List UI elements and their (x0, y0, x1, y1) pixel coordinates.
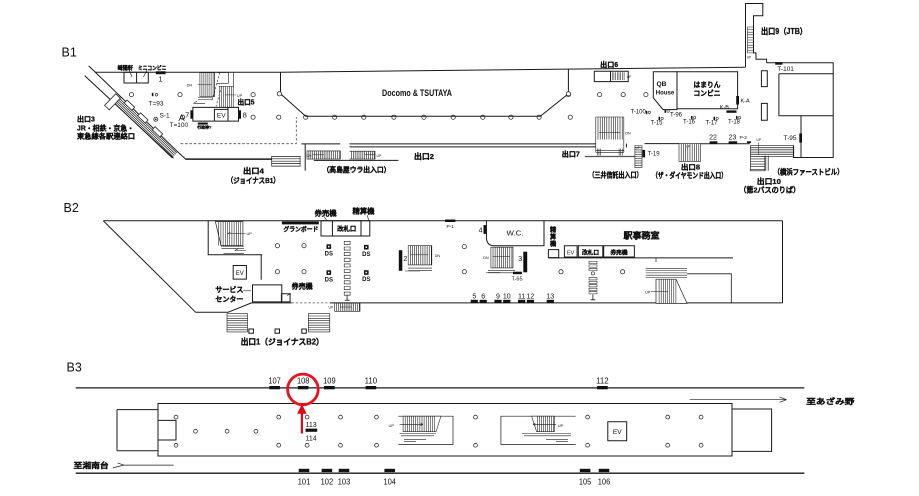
svg-text:ミニコンビニ: ミニコンビニ (138, 64, 167, 72)
svg-text:13: 13 (546, 293, 554, 300)
svg-text:S-1: S-1 (160, 112, 171, 119)
svg-text:P-1: P-1 (446, 224, 454, 230)
svg-text:QB: QB (657, 81, 668, 88)
svg-text:T-18: T-18 (728, 120, 741, 126)
svg-text:はまりん: はまりん (694, 80, 721, 89)
svg-text:T-100: T-100 (631, 109, 647, 115)
svg-text:P-2: P-2 (739, 135, 747, 141)
svg-text:B3: B3 (67, 361, 82, 375)
svg-text:DN: DN (435, 254, 441, 258)
svg-text:T=93: T=93 (149, 100, 164, 107)
svg-text:2: 2 (403, 256, 407, 263)
svg-text:W.C.: W.C. (507, 231, 524, 238)
svg-text:T-19: T-19 (648, 151, 661, 157)
svg-text:UP: UP (237, 94, 243, 98)
svg-text:機: 機 (550, 240, 557, 248)
svg-text:UP: UP (645, 290, 651, 294)
svg-text:T-65: T-65 (512, 276, 523, 282)
svg-text:K-A: K-A (741, 99, 751, 105)
svg-text:102: 102 (321, 478, 334, 487)
svg-text:DN: DN (307, 154, 312, 158)
svg-text:（三井信託出入口）: （三井信託出入口） (589, 170, 643, 180)
svg-text:114: 114 (306, 435, 317, 442)
svg-text:出口3: 出口3 (77, 115, 95, 124)
svg-text:崎陽軒: 崎陽軒 (118, 64, 134, 72)
svg-text:UP: UP (377, 154, 382, 158)
svg-text:JR・相鉄・京急・: JR・相鉄・京急・ (77, 123, 134, 132)
svg-text:（髙島屋ウラ出入口）: （髙島屋ウラ出入口） (323, 165, 391, 174)
svg-text:5: 5 (472, 293, 476, 300)
svg-text:EV: EV (613, 429, 622, 436)
svg-text:K-B: K-B (720, 105, 730, 111)
svg-text:DN: DN (483, 256, 489, 260)
svg-text:Docomo & TSUTAYA: Docomo & TSUTAYA (382, 88, 452, 98)
svg-text:11: 11 (518, 293, 525, 300)
svg-text:104: 104 (383, 478, 396, 487)
svg-text:UP: UP (558, 423, 564, 428)
svg-text:6: 6 (481, 293, 485, 300)
svg-text:UP: UP (247, 232, 253, 236)
svg-text:出口5: 出口5 (238, 98, 255, 107)
svg-text:行政神?: 行政神? (196, 125, 211, 130)
svg-text:112: 112 (596, 376, 609, 385)
svg-text:DN: DN (625, 131, 631, 135)
svg-text:12: 12 (527, 293, 535, 300)
svg-text:8: 8 (243, 110, 247, 119)
svg-text:（ジョイナスB1）: （ジョイナスB1） (227, 175, 280, 185)
svg-text:出口1（ジョイナスB2）: 出口1（ジョイナスB2） (241, 336, 324, 346)
svg-text:UP: UP (756, 138, 761, 142)
svg-text:103: 103 (338, 478, 351, 487)
svg-text:DS: DS (362, 277, 370, 283)
svg-text:106: 106 (598, 478, 611, 487)
svg-text:至湘南台: 至湘南台 (74, 460, 110, 470)
svg-text:107: 107 (268, 376, 281, 385)
svg-text:10: 10 (503, 293, 511, 300)
svg-text:110: 110 (365, 376, 378, 385)
svg-text:券売機: 券売機 (314, 209, 337, 218)
svg-text:7: 7 (185, 110, 189, 119)
svg-text:DS: DS (362, 252, 370, 258)
svg-text:UP: UP (627, 75, 631, 79)
svg-text:至あざみ野: 至あざみ野 (806, 396, 855, 406)
svg-text:T-101: T-101 (777, 66, 794, 73)
svg-text:精算機: 精算機 (353, 207, 375, 216)
svg-text:券売機: 券売機 (610, 249, 628, 257)
svg-text:UP: UP (329, 306, 334, 310)
svg-text:T-96: T-96 (670, 112, 683, 118)
svg-text:4: 4 (479, 227, 483, 234)
svg-text:EV: EV (567, 250, 575, 256)
svg-text:出口9（JTB）: 出口9（JTB） (761, 26, 807, 36)
svg-text:サービス: サービス (215, 285, 243, 294)
svg-text:EV: EV (236, 271, 244, 277)
svg-text:DS: DS (325, 277, 333, 283)
svg-text:T-16: T-16 (683, 120, 696, 126)
svg-text:UP: UP (636, 146, 640, 150)
svg-text:3: 3 (518, 256, 522, 263)
svg-text:東急線各駅連絡口: 東急線各駅連絡口 (77, 132, 135, 141)
svg-text:センター: センター (215, 295, 243, 304)
svg-text:108: 108 (297, 376, 310, 385)
svg-text:B2: B2 (64, 201, 79, 215)
svg-text:出口2: 出口2 (414, 151, 434, 161)
svg-text:改札口: 改札口 (337, 225, 356, 233)
svg-text:出口4: 出口4 (243, 166, 265, 176)
svg-text:（横浜ファーストビル）: （横浜ファーストビル） (774, 166, 844, 176)
svg-text:UP: UP (747, 56, 751, 60)
svg-text:（ザ・ダイヤモンド出入口）: （ザ・ダイヤモンド出入口） (652, 170, 727, 180)
svg-text:（第2バスのりば）: （第2バスのりば） (739, 185, 800, 195)
svg-text:T=100: T=100 (170, 122, 189, 129)
svg-text:113: 113 (306, 422, 317, 429)
svg-text:T-17: T-17 (706, 120, 719, 126)
svg-text:駅事務室: 駅事務室 (624, 231, 661, 241)
svg-text:23: 23 (729, 135, 737, 142)
svg-text:DN: DN (187, 83, 193, 87)
svg-text:109: 109 (323, 376, 336, 385)
svg-text:改札口: 改札口 (582, 249, 599, 257)
svg-text:T-95: T-95 (784, 135, 797, 142)
svg-text:算: 算 (550, 233, 556, 241)
svg-text:9: 9 (496, 293, 500, 300)
svg-text:グランボード: グランボード (283, 225, 318, 233)
svg-text:コンビニ: コンビニ (694, 88, 721, 97)
svg-text:EV: EV (217, 113, 226, 120)
svg-text:1: 1 (158, 74, 162, 83)
svg-text:22: 22 (709, 135, 717, 142)
svg-text:出口7: 出口7 (562, 150, 580, 159)
svg-text:DS: DS (325, 251, 333, 257)
svg-text:券売機: 券売機 (291, 281, 313, 290)
svg-text:House: House (656, 89, 675, 96)
svg-text:UP: UP (686, 144, 690, 148)
svg-text:UP: UP (389, 423, 395, 428)
svg-text:101: 101 (298, 478, 311, 487)
svg-text:精: 精 (550, 226, 557, 234)
svg-text:B1: B1 (62, 46, 77, 60)
svg-text:T-15: T-15 (651, 120, 664, 126)
svg-text:出口6: 出口6 (600, 60, 618, 69)
svg-text:105: 105 (579, 478, 592, 487)
